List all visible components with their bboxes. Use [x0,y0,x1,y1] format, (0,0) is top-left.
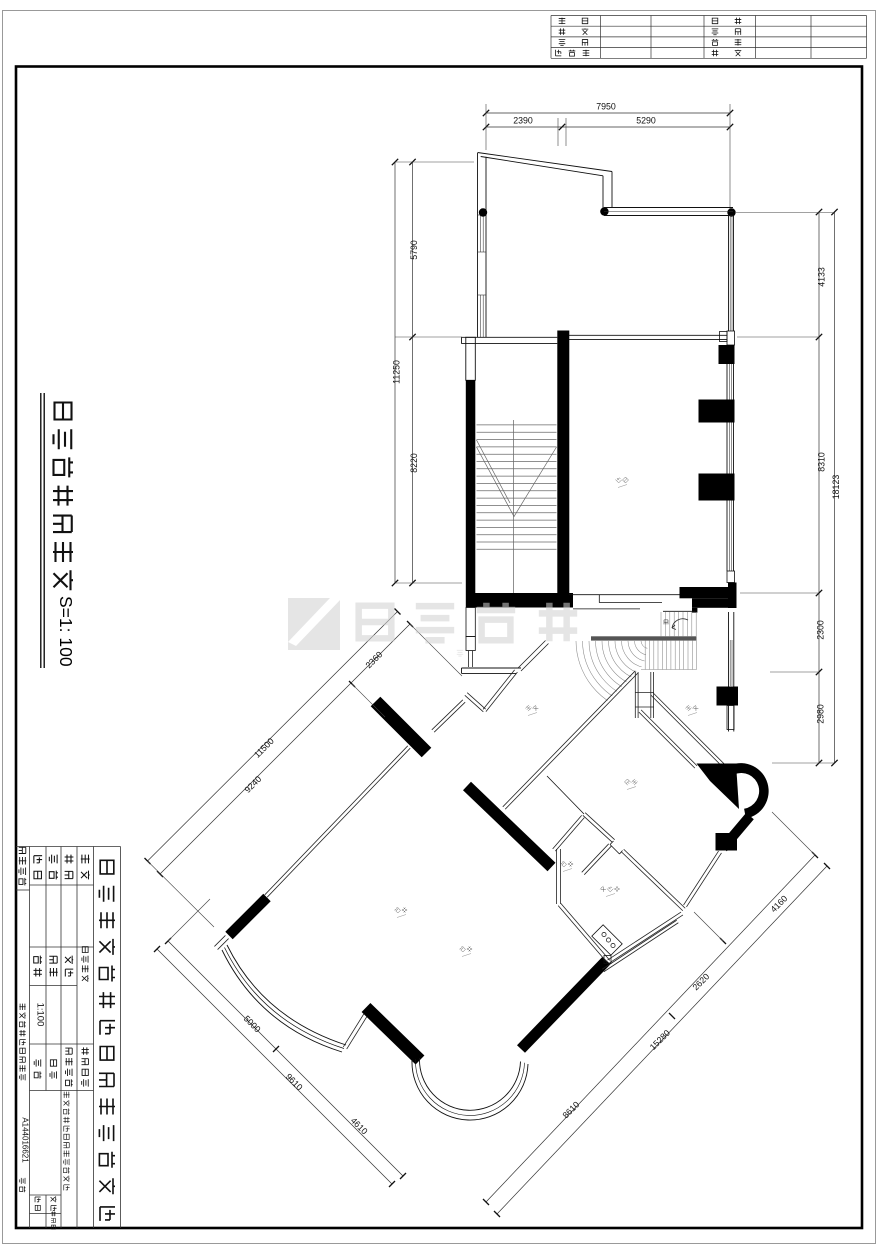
svg-text:1:100: 1:100 [35,1003,46,1027]
svg-text:5290: 5290 [636,116,656,126]
svg-text:8220: 8220 [409,453,419,473]
svg-text:A144016621: A144016621 [21,1117,30,1163]
svg-text:S=1: 100: S=1: 100 [56,596,76,667]
svg-text:18123: 18123 [831,475,841,500]
svg-text:2300: 2300 [816,620,826,640]
svg-text:5790: 5790 [409,240,419,260]
svg-text:8310: 8310 [817,452,827,472]
svg-text:2390: 2390 [513,116,533,126]
svg-text:2980: 2980 [816,704,826,724]
svg-text:11250: 11250 [392,360,402,384]
svg-text:7950: 7950 [596,102,616,112]
svg-text:4133: 4133 [817,267,827,287]
